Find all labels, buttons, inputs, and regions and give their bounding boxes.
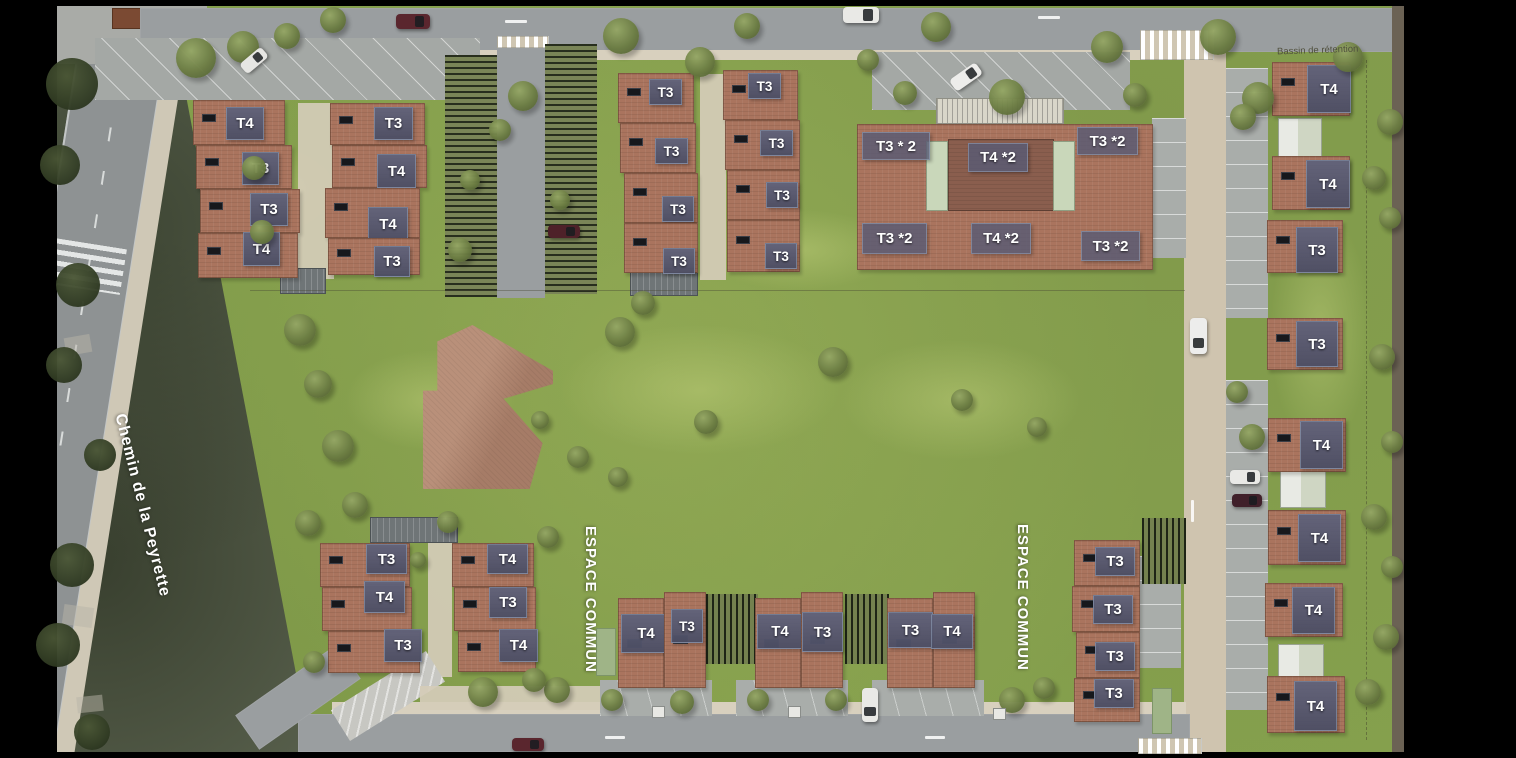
ticket-kiosk bbox=[788, 706, 801, 718]
surface-core bbox=[1053, 141, 1075, 211]
tree bbox=[448, 238, 472, 262]
tree bbox=[1027, 417, 1047, 437]
tree bbox=[1200, 19, 1236, 55]
car bbox=[512, 738, 544, 751]
unit-skylight bbox=[1281, 78, 1295, 86]
tree bbox=[295, 510, 321, 536]
surface-crosswalk-v bbox=[1138, 738, 1202, 754]
tree bbox=[544, 677, 570, 703]
collective-unit-label: T3 *2 bbox=[1077, 127, 1138, 155]
tree bbox=[274, 23, 300, 49]
unit-roof-plate: T4 bbox=[377, 154, 416, 188]
unit-roof-plate: T3 bbox=[1296, 321, 1338, 367]
tree bbox=[605, 317, 635, 347]
collective-unit-label: T3 * 2 bbox=[862, 132, 930, 160]
car-window bbox=[1249, 496, 1257, 505]
unit-skylight bbox=[205, 158, 219, 166]
unit-roof-plate: T4 bbox=[487, 544, 528, 574]
unit-skylight bbox=[209, 202, 223, 210]
car bbox=[1190, 318, 1207, 354]
tree bbox=[303, 651, 325, 673]
photo-tree bbox=[36, 623, 80, 667]
photo-tree bbox=[50, 543, 94, 587]
unit-skylight bbox=[329, 556, 343, 564]
unit-roof-plate: T4 bbox=[757, 614, 803, 649]
unit-skylight bbox=[337, 644, 351, 652]
tree bbox=[1381, 556, 1403, 578]
car-window bbox=[530, 740, 539, 749]
unit-roof-plate: T4 bbox=[1294, 681, 1337, 731]
surface-stripes-v bbox=[706, 594, 758, 664]
tree bbox=[1369, 344, 1395, 370]
tree bbox=[1381, 431, 1403, 453]
tree bbox=[1379, 207, 1401, 229]
tree bbox=[670, 690, 694, 714]
unit-skylight bbox=[339, 116, 353, 124]
ticket-kiosk bbox=[652, 706, 665, 718]
unit-roof-plate: T3 bbox=[374, 107, 413, 140]
unit-skylight bbox=[1276, 334, 1290, 342]
surface-line-h bbox=[250, 290, 1185, 291]
tree bbox=[1091, 31, 1123, 63]
tree bbox=[537, 526, 559, 548]
tree bbox=[601, 689, 623, 711]
tree bbox=[893, 81, 917, 105]
tree bbox=[857, 49, 879, 71]
tree bbox=[989, 79, 1025, 115]
unit-skylight bbox=[463, 600, 477, 608]
tree bbox=[608, 467, 628, 487]
tree bbox=[1033, 677, 1055, 699]
tree bbox=[1361, 504, 1387, 530]
tree bbox=[550, 190, 570, 210]
surface-road-gray bbox=[298, 714, 1190, 752]
tree bbox=[1355, 679, 1381, 705]
pedestrian-crossing bbox=[0, 679, 57, 736]
road-dash bbox=[605, 736, 625, 739]
unit-roof-plate: T3 bbox=[1093, 595, 1133, 624]
tree bbox=[603, 18, 639, 54]
tree bbox=[685, 47, 715, 77]
surface-path bbox=[420, 686, 600, 710]
unit-skylight bbox=[334, 203, 348, 211]
unit-roof-plate: T4 bbox=[931, 614, 973, 649]
unit-roof-plate: T4 bbox=[1306, 160, 1350, 208]
car-window bbox=[566, 227, 575, 236]
car-window bbox=[1193, 338, 1205, 348]
surface-pad bbox=[1280, 466, 1326, 508]
road-dash bbox=[925, 736, 945, 739]
tree bbox=[176, 38, 216, 78]
unit-roof-plate: T3 bbox=[888, 612, 933, 648]
unit-roof-plate: T3 bbox=[1095, 547, 1135, 576]
car bbox=[396, 14, 430, 29]
unit-skylight bbox=[1281, 172, 1295, 180]
tree bbox=[818, 347, 848, 377]
unit-skylight bbox=[1276, 693, 1290, 701]
unit-skylight bbox=[1274, 599, 1288, 607]
unit-roof-plate: T4 bbox=[364, 581, 405, 613]
road-dash bbox=[1038, 16, 1060, 19]
collective-unit-label: T3 *2 bbox=[862, 223, 927, 254]
unit-roof-plate: T4 bbox=[368, 207, 408, 242]
tree bbox=[410, 552, 426, 568]
tree bbox=[242, 156, 266, 180]
unit-skylight bbox=[202, 114, 216, 122]
unit-skylight bbox=[467, 643, 481, 651]
collective-unit-label: T4 *2 bbox=[971, 223, 1031, 254]
site-plan-image: T4T3T3T4T3T4T4T3T3T3T3T3T3T3T3T3T4T4T3T3… bbox=[0, 0, 1516, 758]
tree bbox=[284, 314, 316, 346]
common-area-label-left: ESPACE COMMUN bbox=[582, 526, 599, 673]
unit-skylight bbox=[461, 556, 475, 564]
tree bbox=[631, 291, 655, 315]
tree bbox=[1373, 624, 1399, 650]
unit-roof-plate: T4 bbox=[226, 107, 264, 140]
common-area-label-right: ESPACE COMMUN bbox=[1014, 524, 1031, 671]
surface-pad bbox=[1278, 118, 1322, 158]
photo-tree bbox=[74, 714, 110, 750]
photo-tree bbox=[84, 439, 116, 471]
unit-roof-plate: T4 bbox=[1307, 65, 1351, 113]
surface-stripes-h bbox=[545, 44, 597, 294]
unit-skylight bbox=[331, 600, 345, 608]
tree bbox=[921, 12, 951, 42]
tree bbox=[342, 492, 368, 518]
road-dash bbox=[1191, 500, 1194, 522]
grass-patch bbox=[560, 325, 840, 455]
unit-roof-plate: T3 bbox=[489, 587, 527, 618]
surface-vline-dashed bbox=[1366, 60, 1368, 740]
unit-roof-plate: T3 bbox=[1094, 679, 1134, 708]
car bbox=[548, 225, 580, 238]
unit-roof-plate: T3 bbox=[766, 182, 798, 208]
unit-roof-plate: T3 bbox=[655, 138, 688, 164]
tree bbox=[320, 7, 346, 33]
unit-skylight bbox=[1276, 236, 1290, 244]
surface-bays-h bbox=[1152, 118, 1186, 258]
unit-roof-plate: T3 bbox=[384, 629, 422, 662]
tree bbox=[250, 220, 274, 244]
car bbox=[1230, 470, 1260, 484]
unit-skylight bbox=[736, 185, 750, 193]
surface-stripes-v bbox=[1142, 518, 1186, 584]
unit-skylight bbox=[629, 138, 643, 146]
tree bbox=[1123, 83, 1147, 107]
unit-roof-plate: T3 bbox=[765, 243, 797, 269]
tree bbox=[567, 446, 589, 468]
tree bbox=[508, 81, 538, 111]
unit-skylight bbox=[1277, 434, 1291, 442]
tree bbox=[531, 411, 549, 429]
unit-roof-plate: T3 bbox=[802, 612, 843, 652]
car bbox=[862, 688, 878, 722]
unit-skylight bbox=[627, 88, 641, 96]
collective-unit-label: T4 *2 bbox=[968, 143, 1028, 172]
car-window bbox=[252, 51, 264, 63]
unit-roof-plate: T3 bbox=[662, 196, 694, 222]
car bbox=[1232, 494, 1262, 507]
collective-unit-label: T3 *2 bbox=[1081, 231, 1140, 261]
unit-roof-plate: T4 bbox=[499, 629, 538, 662]
unit-skylight bbox=[207, 247, 221, 255]
tree bbox=[437, 511, 459, 533]
photo-tree bbox=[46, 58, 98, 110]
unit-roof-plate: T4 bbox=[1298, 514, 1341, 562]
tree bbox=[460, 170, 480, 190]
unit-skylight bbox=[732, 85, 746, 93]
unit-roof-plate: T3 bbox=[649, 79, 682, 105]
unit-skylight bbox=[633, 188, 647, 196]
tree bbox=[747, 689, 769, 711]
tree bbox=[1377, 109, 1403, 135]
tree bbox=[1226, 381, 1248, 403]
tree bbox=[522, 668, 546, 692]
unit-roof-plate: T3 bbox=[1296, 227, 1338, 273]
surface-crosswalk-v bbox=[497, 36, 549, 48]
unit-roof-plate: T3 bbox=[671, 609, 703, 643]
car-window bbox=[864, 707, 875, 717]
tree bbox=[694, 410, 718, 434]
tree bbox=[322, 430, 354, 462]
tree bbox=[951, 389, 973, 411]
tree bbox=[1362, 166, 1386, 190]
unit-skylight bbox=[734, 135, 748, 143]
car-window bbox=[863, 9, 873, 20]
unit-skylight bbox=[736, 236, 750, 244]
tree bbox=[1239, 424, 1265, 450]
unit-skylight bbox=[337, 249, 351, 257]
car-window bbox=[415, 16, 425, 27]
unit-roof-plate: T4 bbox=[1292, 587, 1335, 634]
surface-stripes-v bbox=[845, 594, 889, 664]
photo-tree bbox=[56, 263, 100, 307]
tree bbox=[825, 689, 847, 711]
surface-path bbox=[428, 543, 452, 677]
photo-tree bbox=[46, 347, 82, 383]
photo-house-roof bbox=[76, 695, 104, 714]
unit-skylight bbox=[341, 158, 355, 166]
unit-roof-plate: T3 bbox=[374, 246, 410, 277]
unit-roof-plate: T3 bbox=[663, 248, 695, 274]
tree bbox=[734, 13, 760, 39]
tree bbox=[1230, 104, 1256, 130]
photo-tree bbox=[40, 145, 80, 185]
surface-pad-green bbox=[1152, 688, 1172, 734]
unit-roof-plate: T3 bbox=[760, 130, 793, 156]
tree bbox=[304, 370, 332, 398]
car bbox=[843, 7, 879, 23]
car-window bbox=[1247, 472, 1255, 482]
unit-roof-plate: T4 bbox=[1300, 421, 1343, 469]
surface-pad-green bbox=[596, 628, 616, 676]
ticket-kiosk bbox=[993, 708, 1006, 720]
unit-roof-plate: T3 bbox=[1095, 642, 1135, 671]
surface-road-tan bbox=[1184, 50, 1226, 752]
unit-skylight bbox=[1277, 527, 1291, 535]
unit-skylight bbox=[633, 238, 647, 246]
tree bbox=[489, 119, 511, 141]
tree bbox=[468, 677, 498, 707]
unit-roof-plate: T3 bbox=[366, 544, 407, 574]
road-dash bbox=[505, 20, 527, 23]
unit-roof-plate: T3 bbox=[748, 73, 781, 99]
car-window bbox=[964, 67, 977, 80]
